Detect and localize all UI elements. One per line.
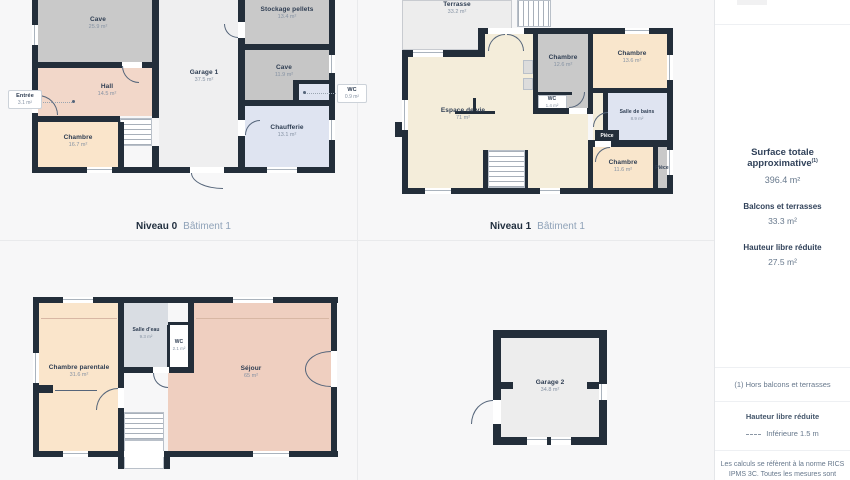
door-opening: [493, 400, 501, 424]
room-label-sejour: Séjour65 m²: [241, 365, 262, 381]
wall-stub: [587, 382, 599, 389]
wall: [493, 330, 607, 338]
door-opening: [569, 108, 587, 114]
wall: [245, 100, 329, 106]
wall: [493, 330, 501, 445]
window: [413, 50, 443, 57]
sidebar-logo-section: [715, 0, 850, 25]
window: [329, 55, 335, 73]
wall: [588, 28, 593, 110]
wall: [118, 122, 124, 167]
reduced-height-value: 27.5 m²: [715, 257, 850, 267]
wall-stub: [39, 385, 53, 393]
leader-line: [38, 102, 74, 103]
room-label-piece-grise: Pièce: [655, 165, 669, 172]
plan-label-niveau-0: Niveau 0Bâtiment 1: [32, 221, 335, 232]
room-label-hall: Hall14.5 m²: [98, 83, 117, 99]
room-label-terrasse: Terrasse33.2 m²: [443, 1, 470, 17]
summary-sidebar: Surface totale approximative(1) 396.4 m²…: [714, 0, 850, 480]
stairs-etage: [124, 412, 164, 440]
wall: [483, 150, 488, 188]
legend-row: Inférieure 1.5 m: [715, 429, 850, 438]
balconies-label: Balcons et terrasses: [715, 202, 850, 211]
stairs-terrasse: [517, 0, 551, 27]
window: [599, 384, 607, 400]
window: [402, 100, 408, 130]
window: [32, 25, 38, 45]
total-surface-value: 396.4 m²: [715, 175, 850, 185]
door-arc: [191, 173, 223, 189]
window: [667, 55, 673, 80]
plan-label-niveau-1: Niveau 1Bâtiment 1: [395, 221, 680, 232]
room-label-salle-de-bains: Salle de bains8.9 m²: [620, 109, 655, 121]
door-opening: [331, 351, 337, 387]
wall-stub: [501, 382, 513, 389]
room-label-cave-1: Cave25.9 m²: [89, 16, 108, 32]
room-label-chaufferie: Chaufferie13.1 m²: [270, 124, 303, 140]
room-label-chambre-grise: Chambre12.6 m²: [549, 54, 578, 70]
wall: [188, 303, 194, 370]
window: [63, 297, 93, 303]
window: [540, 188, 560, 194]
window: [87, 167, 112, 173]
disclaimer-text: Les calculs se réfèrent à la norme RICS …: [715, 451, 850, 480]
room-label-espace-de-vie: Espace de vie71 m²: [441, 107, 485, 123]
floorplan-garage-2: Garage 234.8 m²: [493, 330, 607, 445]
beam-line: [196, 318, 329, 319]
room-label-garage-1: Garage 137.5 m²: [190, 69, 219, 85]
room-label-garage-2: Garage 234.8 m²: [536, 379, 565, 395]
footnote-text: (1) Hors balcons et terrasses: [715, 368, 850, 389]
wall: [164, 451, 170, 469]
wall: [293, 84, 299, 100]
door-opening: [238, 120, 245, 136]
stairs-niveau0: [120, 118, 152, 146]
room-label-wc-etage: WC2.1 m²: [173, 339, 186, 351]
room-label-chambre-parentale: Chambre parentale31.6 m²: [49, 364, 110, 380]
balconies-value: 33.3 m²: [715, 216, 850, 226]
room-label-chambre-n0: Chambre16.7 m²: [64, 134, 93, 150]
sidebar-legend-section: Hauteur libre réduite Inférieure 1.5 m: [715, 402, 850, 451]
logo: [737, 0, 767, 5]
wall: [329, 0, 335, 167]
stair-opening: [124, 451, 164, 457]
door-opening: [488, 28, 524, 34]
floorplan-sheet: Cave25.9 m² Stockage pellets13.4 m² Cave…: [0, 0, 850, 480]
dashed-line-icon: [746, 434, 761, 435]
leader-dot: [72, 100, 75, 103]
window: [267, 167, 297, 173]
wall: [152, 0, 159, 118]
total-surface-title: Surface totale approximative(1): [715, 147, 850, 169]
leader-line: [304, 93, 336, 94]
wall: [533, 34, 538, 112]
legend-item-text: Inférieure 1.5 m: [766, 429, 819, 438]
wall: [168, 322, 188, 325]
window: [625, 28, 649, 34]
door-opening: [118, 388, 124, 408]
divider-horizontal: [0, 240, 714, 241]
wall: [118, 303, 124, 451]
window: [667, 150, 673, 175]
wall: [525, 150, 528, 188]
leader-dot: [303, 91, 306, 94]
reduced-height-label: Hauteur libre réduite: [715, 243, 850, 252]
wall: [538, 92, 572, 95]
sidebar-disclaimer-section: Les calculs se réfèrent à la norme RICS …: [715, 451, 850, 480]
wall: [478, 28, 485, 57]
room-label-stockage: Stockage pellets13.4 m²: [261, 6, 314, 22]
wall: [588, 143, 593, 194]
window: [33, 353, 39, 383]
window: [233, 297, 273, 303]
wall: [167, 325, 170, 367]
door-opening: [238, 22, 245, 38]
window: [425, 188, 451, 194]
wall: [245, 44, 329, 50]
window: [253, 451, 289, 457]
badge-wc-n0: WC0.9 m²: [337, 84, 367, 103]
footnote-marker: (1): [812, 158, 818, 164]
door-arc: [471, 400, 493, 424]
wall: [588, 88, 673, 93]
garage-door: [551, 437, 571, 445]
room-label-chambre-tr: Chambre13.6 m²: [618, 50, 647, 66]
sidebar-footnote-section: (1) Hors balcons et terrasses: [715, 368, 850, 402]
wall: [493, 437, 607, 445]
room-label-wc-n1: WC1.4 m²: [546, 96, 559, 108]
room-label-salle-deau: Salle d'eau9.3 m²: [132, 327, 159, 339]
wall: [32, 116, 120, 122]
door-arc: [153, 373, 168, 388]
beam-line: [41, 318, 117, 319]
wall: [395, 122, 402, 137]
floorplan-niveau-0: Cave25.9 m² Stockage pellets13.4 m² Cave…: [32, 0, 335, 173]
window: [329, 120, 335, 140]
badge-entree: Entrée3.1 m²: [8, 90, 42, 109]
wall: [118, 451, 124, 469]
legend-title: Hauteur libre réduite: [715, 402, 850, 421]
floorplan-etage: Chambre parentale31.6 m² Salle d'eau9.3 …: [33, 293, 338, 476]
room-label-cave-2: Cave11.9 m²: [275, 64, 293, 80]
room-label-chambre-br: Chambre11.6 m²: [609, 159, 638, 175]
sidebar-stats-section: Surface totale approximative(1) 396.4 m²…: [715, 25, 850, 368]
window: [63, 451, 88, 457]
closet-rod: [55, 390, 97, 391]
floorplan-niveau-1: Terrasse33.2 m² Chambre12.6 m² Chambre13…: [395, 0, 680, 200]
kitchen-fixture: [523, 78, 533, 90]
room-sejour-ext: [168, 370, 194, 451]
kitchen-fixture: [523, 60, 533, 74]
garage-door: [527, 437, 547, 445]
stairs-niveau1: [488, 150, 525, 188]
wall: [152, 146, 159, 167]
room-label-piece-badge: Pièce: [595, 130, 619, 141]
